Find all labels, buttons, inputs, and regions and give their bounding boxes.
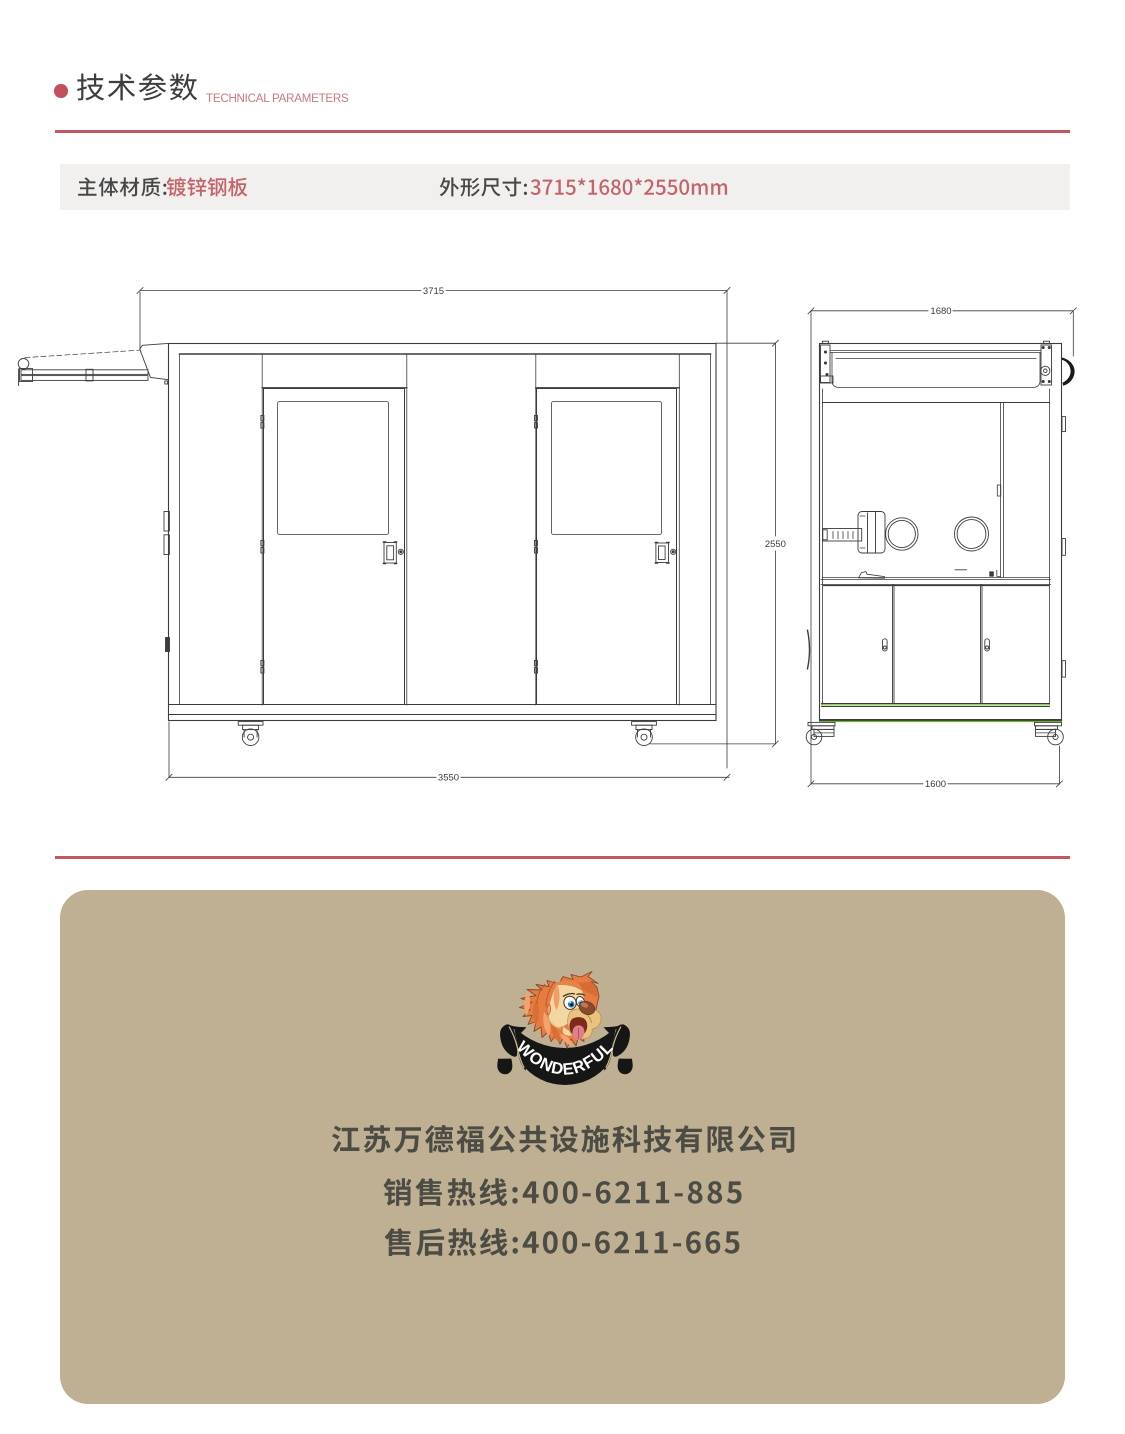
- svg-text:3715: 3715: [423, 286, 444, 297]
- svg-text:1600: 1600: [925, 779, 946, 790]
- svg-text:2550: 2550: [765, 539, 786, 550]
- svg-text:1680: 1680: [930, 306, 951, 317]
- svg-text:3550: 3550: [438, 773, 459, 784]
